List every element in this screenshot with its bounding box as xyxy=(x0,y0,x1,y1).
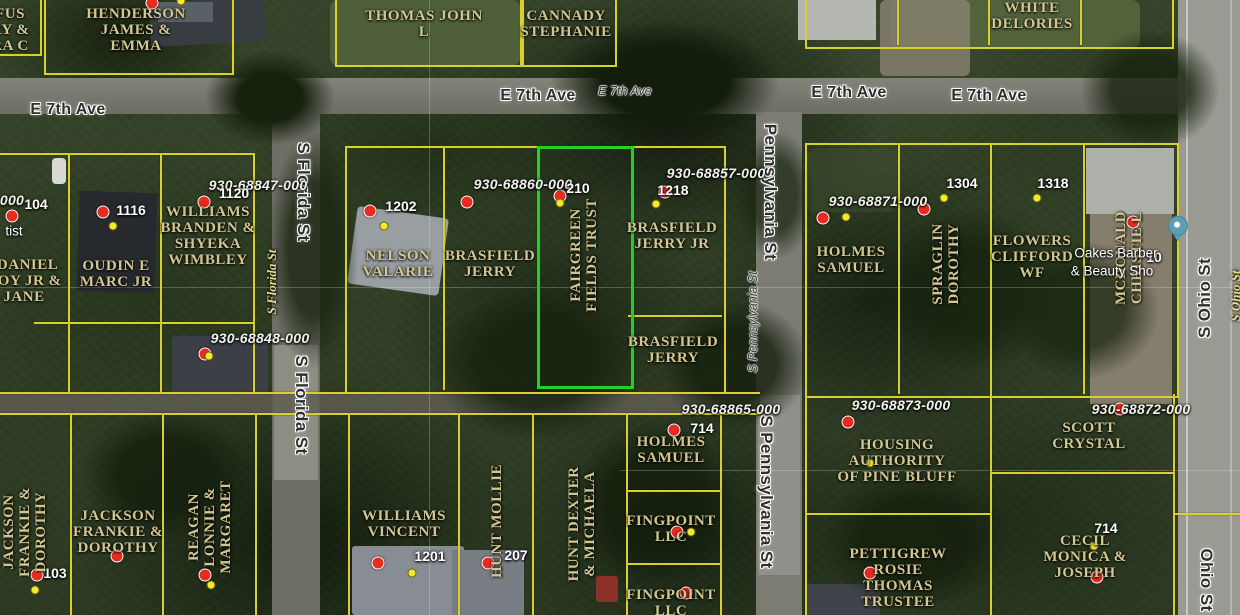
red-parcel-point-marker xyxy=(842,416,855,429)
owner-label: OUDIN EMARC JR xyxy=(80,258,152,290)
survey-grid-line xyxy=(620,470,1240,471)
parcel-boundary[interactable] xyxy=(458,413,460,615)
parcel-boundary[interactable] xyxy=(990,143,992,615)
owner-label: cDANIELROY JR &JANE xyxy=(0,257,62,305)
red-parcel-point-marker xyxy=(31,569,44,582)
yellow-structure-point-marker xyxy=(207,581,216,590)
red-parcel-point-marker xyxy=(671,526,684,539)
street-label: Pennsylvania St xyxy=(760,124,780,260)
red-parcel-point-marker xyxy=(6,210,19,223)
red-parcel-point-marker xyxy=(364,205,377,218)
street-label: Ohio St xyxy=(1196,548,1216,611)
red-parcel-point-marker xyxy=(461,196,474,209)
parcel-boundary[interactable] xyxy=(626,413,628,615)
parcel-boundary[interactable] xyxy=(897,0,899,45)
parcel-id-label: 000 xyxy=(0,192,24,208)
street-label: S Florida St xyxy=(264,249,280,314)
parcel-boundary[interactable] xyxy=(520,0,617,67)
street-label: E 7th Ave xyxy=(951,87,1026,105)
street-label: E 7th Ave xyxy=(500,87,575,105)
street-label: S Ohio St xyxy=(1228,270,1240,321)
parcel-boundary[interactable] xyxy=(1080,0,1082,45)
street-label: E 7th Ave xyxy=(811,84,886,102)
red-parcel-point-marker xyxy=(372,557,385,570)
red-parcel-point-marker xyxy=(1127,216,1140,229)
red-parcel-point-marker xyxy=(1091,571,1104,584)
red-parcel-point-marker xyxy=(111,550,124,563)
yellow-structure-point-marker xyxy=(109,222,118,231)
parcel-boundary[interactable] xyxy=(345,146,726,394)
parcel-boundary[interactable] xyxy=(160,153,162,393)
poi-label: tist xyxy=(5,224,22,239)
red-parcel-point-marker xyxy=(864,567,877,580)
parcel-boundary[interactable] xyxy=(898,143,900,394)
owner-label: JACKSONFRANKIE &DOROTHY xyxy=(1,487,49,577)
poi-pin-head xyxy=(1168,216,1188,236)
parcel-id-label: 930-68848-000 xyxy=(211,330,310,346)
parcel-boundary[interactable] xyxy=(626,490,722,492)
owner-label: PETTIGREWROSIETHOMASTRUSTEE xyxy=(849,546,946,610)
street-label: S Florida St xyxy=(293,142,313,241)
owner-label: CECILMONICA &JOSEPH xyxy=(1043,533,1127,581)
owner-label: HUNT DEXTER& MICHAELA xyxy=(566,467,598,582)
house-number-label: 1201 xyxy=(414,548,445,564)
parcel-boundary[interactable] xyxy=(720,413,722,615)
street-label: S Pennsylvania St xyxy=(756,415,776,568)
yellow-structure-point-marker xyxy=(31,586,40,595)
owner-label: HOLMESSAMUEL xyxy=(637,434,706,466)
red-parcel-point-marker xyxy=(97,206,110,219)
parcel-boundary[interactable] xyxy=(626,563,722,565)
yellow-structure-point-marker xyxy=(556,199,565,208)
yellow-structure-point-marker xyxy=(687,528,696,537)
parcel-boundary[interactable] xyxy=(1173,394,1175,615)
parcel-id-label: 930-68872-000 xyxy=(1092,401,1191,417)
street-label: E 7th Ave xyxy=(30,101,105,119)
red-parcel-point-marker xyxy=(918,203,931,216)
yellow-structure-point-marker xyxy=(380,222,389,231)
street-label: E 7th Ave xyxy=(598,84,652,98)
yellow-structure-point-marker xyxy=(1090,542,1099,551)
parcel-boundary[interactable] xyxy=(805,394,807,615)
owner-label: WILLIAMSBRANDEN &SHYEKAWIMBLEY xyxy=(161,204,256,268)
parcel-boundary[interactable] xyxy=(348,413,350,615)
red-parcel-point-marker xyxy=(482,557,495,570)
house-number-label: 104 xyxy=(24,196,47,212)
poi-pin-icon[interactable] xyxy=(1168,216,1188,242)
red-parcel-point-marker xyxy=(668,424,681,437)
parcel-boundary[interactable] xyxy=(335,0,524,67)
house-number-label: 714 xyxy=(1094,520,1117,536)
parcel-boundary[interactable] xyxy=(255,413,257,615)
parcel-boundary[interactable] xyxy=(253,153,255,393)
red-parcel-point-marker xyxy=(198,196,211,209)
parcel-id-label: 930-68847-000 xyxy=(209,177,308,193)
parcel-boundary[interactable] xyxy=(0,153,253,155)
parcel-boundary[interactable] xyxy=(628,315,722,317)
parcel-boundary[interactable] xyxy=(162,413,164,615)
owner-label: HOUSINGAUTHORITYOF PINE BLUFF xyxy=(837,437,956,485)
yellow-structure-point-marker xyxy=(652,200,661,209)
parcel-boundary[interactable] xyxy=(1173,513,1240,515)
house-number-label: 103 xyxy=(43,565,66,581)
street-label: S Florida St xyxy=(291,355,311,454)
house-number-label: 207 xyxy=(504,547,527,563)
street-label: S Ohio St xyxy=(1195,258,1215,338)
yellow-structure-point-marker xyxy=(408,569,417,578)
selected-parcel[interactable] xyxy=(537,146,634,389)
parcel-boundary[interactable] xyxy=(34,322,255,324)
parcel-boundary[interactable] xyxy=(805,143,1179,398)
yellow-structure-point-marker xyxy=(866,459,875,468)
parcel-boundary[interactable] xyxy=(0,0,42,56)
owner-label: REAGANLONNIE &MARGARET xyxy=(186,480,234,573)
parcel-boundary[interactable] xyxy=(44,0,234,75)
parcel-boundary[interactable] xyxy=(0,413,760,415)
parcel-boundary[interactable] xyxy=(532,413,534,615)
owner-label: FINGPOINTLLC xyxy=(626,587,716,615)
parcel-boundary[interactable] xyxy=(805,513,992,515)
parcel-boundary[interactable] xyxy=(68,153,70,393)
yellow-structure-point-marker xyxy=(842,213,851,222)
red-parcel-point-marker xyxy=(1114,403,1127,416)
parcel-boundary[interactable] xyxy=(443,146,445,390)
house-number-label: 714 xyxy=(690,420,713,436)
parcel-boundary[interactable] xyxy=(1083,143,1085,394)
parcel-boundary[interactable] xyxy=(990,472,1175,474)
red-parcel-point-marker xyxy=(817,212,830,225)
parcel-id-label: 930-68873-000 xyxy=(852,397,951,413)
yellow-structure-point-marker xyxy=(1033,194,1042,203)
owner-label: SCOTTCRYSTAL xyxy=(1052,420,1126,452)
red-parcel-point-marker xyxy=(659,186,672,199)
yellow-structure-point-marker xyxy=(940,194,949,203)
house-number-label: 1120 xyxy=(219,185,249,201)
house-number-label: 1116 xyxy=(116,202,146,218)
red-parcel-point-marker xyxy=(680,587,693,600)
parcel-boundary[interactable] xyxy=(70,413,72,615)
yellow-structure-point-marker xyxy=(205,352,214,361)
map-canvas[interactable]: E 7th AveE 7th AveE 7th AveE 7th AveE 7t… xyxy=(0,0,1240,615)
parcel-boundary[interactable] xyxy=(988,0,990,45)
owner-label: WILLIAMSVINCENT xyxy=(362,508,446,540)
